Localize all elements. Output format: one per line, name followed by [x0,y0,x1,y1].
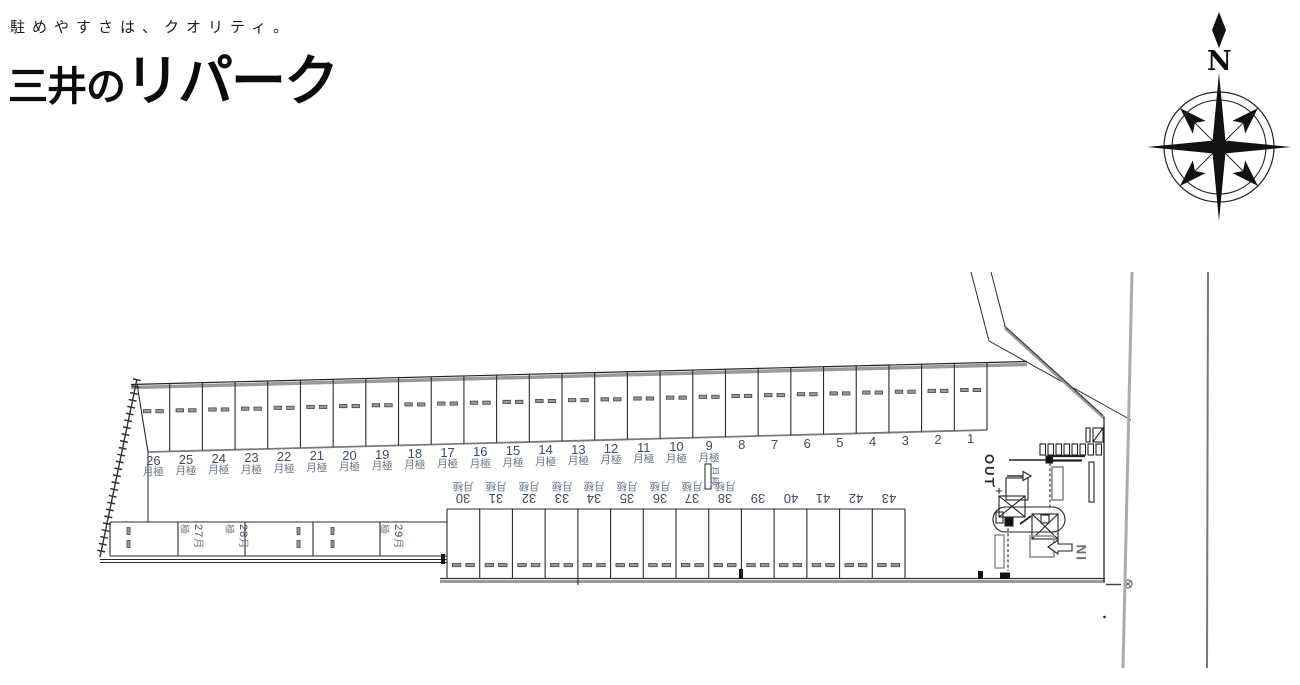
wheel-stop [127,528,130,535]
space-number: 32 [514,492,544,505]
compass-east-point [1219,140,1291,154]
wheel-stop [646,397,654,400]
wheel-stop [143,410,151,413]
space-monthly-label: 月極 [612,480,642,491]
space-number: 34 [579,492,609,505]
space-number: 29月極 [377,524,404,554]
wheel-stop [858,564,867,567]
island-marker [1005,518,1013,526]
wheel-stop [662,564,671,567]
wheel-stop [405,403,413,406]
road-lines [1123,272,1208,668]
space-number: 35 [612,492,642,505]
wheel-stop [352,405,360,408]
space-number: 2 [923,433,953,446]
space-number: 5 [825,436,855,449]
space-number: 28 [237,524,249,538]
wheel-stop [732,394,740,397]
space-monthly-label: 月極 [498,458,528,469]
wheel-stop [176,409,184,412]
space-monthly-label: 月極 [547,480,577,491]
wheel-stop [499,564,508,567]
wheel-stop [891,564,900,567]
wheel-stop [466,564,475,567]
space-number: 27月極 [177,524,204,554]
wheel-stop [127,541,130,548]
brand-tagline: 駐めやすさは、クオリティ。 [10,16,295,37]
space-number: 6 [792,437,822,450]
wheel-stop [973,388,981,391]
wheel-stop [863,391,871,394]
wheel-stop [695,564,704,567]
compass-north-label: N [1207,46,1232,77]
wheel-stop [503,400,511,403]
wheel-stop [319,405,327,408]
wheel-stop [568,399,576,402]
wheel-stop [450,402,458,405]
wheel-stop [614,398,622,401]
compass-rose [1147,12,1291,221]
wheel-stop [254,407,262,410]
wheel-stop [483,401,491,404]
space-monthly-label: 月極 [661,454,691,465]
wheel-stop [515,400,523,403]
space-number: 31 [481,492,511,505]
wheel-stop [629,564,638,567]
wheel-stop [744,394,752,397]
wheel-stop [712,395,720,398]
wheel-stop [438,402,446,405]
space-number: 10 [661,440,691,453]
wheel-stop [908,390,916,393]
wheel-stop [765,394,773,397]
equipment-cabinet [995,535,1004,568]
space-monthly-label: 月極 [433,459,463,470]
wheel-stop [760,564,769,567]
space-monthly-label: 月極 [645,480,675,491]
space-monthly-label: 月極 [400,460,430,471]
equipment-cabinet [1089,462,1094,502]
compass-west-point [1147,140,1219,154]
wheel-stop [940,389,948,392]
space-number: 13 [563,443,593,456]
space-monthly-label: 月極 [171,466,201,477]
wheel-stop [385,404,393,407]
space-number: 1 [956,432,986,445]
space-number: 21 [302,449,332,462]
wheel-stop [780,564,789,567]
gate-island [993,507,1065,532]
wheel-stop [221,408,229,411]
wheel-stop [470,401,478,404]
space-number: 17 [433,446,463,459]
wheel-stop [297,528,300,535]
space-monthly-label: 月極 [629,454,659,465]
logo-prefix: 三井の [8,65,125,109]
wheel-stop [875,391,883,394]
wheel-stop [878,564,887,567]
wheel-stop [679,396,687,399]
wheel-stop [331,528,334,535]
wheel-stop [842,392,850,395]
wheel-stop [297,541,300,548]
space-monthly-label: 月極 [302,463,332,474]
wheel-stop [331,541,334,548]
space-number: 4 [858,435,888,448]
wheel-stop [209,408,217,411]
space-number: 26 [138,454,168,467]
space-number: 23 [236,451,266,464]
space-number: 38 [710,492,740,505]
space-monthly-label: 月極 [367,461,397,472]
sign-post [1086,428,1090,442]
wheel-stop [634,397,642,400]
wheel-stop [830,392,838,395]
wheel-stop [564,564,573,567]
wheel-stop [747,564,756,567]
wheel-stop [372,404,380,407]
space-number: 28月極 [222,524,249,554]
space-number: 25 [171,453,201,466]
space-monthly-label: 月極 [236,465,266,476]
wheel-stop [417,403,425,406]
space-monthly-label: 月極 [269,464,299,475]
space-number: 37 [677,492,707,505]
wheel-stop [961,388,969,391]
wheel-stop [485,564,494,567]
space-number: 15 [498,444,528,457]
space-monthly-label: 月極 [677,480,707,491]
space-number: 42 [841,492,871,505]
wheel-stop [928,389,936,392]
wheel-stop [728,564,737,567]
space-number: 33 [547,492,577,505]
wheel-stop [307,405,315,408]
wheel-stop [156,410,164,413]
space-monthly-label: 月極 [138,467,168,478]
space-number: 30 [448,492,478,505]
space-number: 19 [367,448,397,461]
compass-diamond [1212,12,1226,48]
space-number: 3 [890,434,920,447]
space-monthly-label: 月極 [481,480,511,491]
gate-post-marker [1046,456,1053,463]
gate-out-label: OUT [982,454,997,487]
space-number: 16 [465,445,495,458]
compass-south-point [1212,147,1226,221]
wheel-stop [581,399,589,402]
space-number: 41 [808,492,838,505]
out-arrow-icon [1023,472,1031,481]
space-number: 29 [392,524,404,538]
space-monthly-label: 月極 [579,480,609,491]
space-monthly-label: 月極 [465,459,495,470]
fence-strip [1040,444,1102,455]
brand-logo: 三井のリパーク [8,36,337,116]
wheel-stop [616,564,625,567]
wheel-stop [699,395,707,398]
wheel-stop [548,399,556,402]
wheel-stop [551,564,560,567]
wheel-stop [649,564,658,567]
wheel-stop [797,393,805,396]
wheel-stop [777,394,785,397]
wheel-stop [452,564,461,567]
space-number: 14 [531,443,561,456]
logo-main: リパーク [125,50,337,112]
space-monthly-label: 月極 [563,456,593,467]
parking-site-plan: 駐めやすさは、クオリティ。 三井のリパーク N OUT IN 月極 26月極25… [0,0,1300,685]
space-number: 20 [335,449,365,462]
space-number: 8 [727,438,757,451]
space-number: 12 [596,442,626,455]
wheel-stop [531,564,540,567]
space-monthly-label: 月極 [335,462,365,473]
post-marker [1000,573,1010,580]
space-number: 39 [743,492,773,505]
space-number: 43 [874,492,904,505]
wheel-stop [340,405,348,408]
wheel-stop [274,406,282,409]
space-monthly-label: 月極 [448,480,478,491]
space-divider [137,384,148,452]
wheel-stop [826,564,835,567]
wheel-stop [895,390,903,393]
space-monthly-label: 月極 [694,453,724,464]
space-number: 27 [192,524,204,538]
space-number: 40 [776,492,806,505]
wheel-stop [793,564,802,567]
space-number: 18 [400,447,430,460]
wheel-stop [601,398,609,401]
wheel-stop [681,564,690,567]
space-monthly-label: 月極 [514,480,544,491]
post-marker [978,571,983,579]
wheel-stop [812,564,821,567]
wheel-stop [845,564,854,567]
wheel-stop [666,396,674,399]
space-number: 36 [645,492,675,505]
wheel-stop [810,393,818,396]
space-number: 22 [269,450,299,463]
space-number: 9 [694,439,724,452]
wheel-stop [287,406,295,409]
wheel-stop [241,407,249,410]
wheel-stop [597,564,606,567]
space-monthly-label: 月極 [531,457,561,468]
wheel-stop [518,564,527,567]
gate-in-label: IN [1074,543,1089,561]
wheel-stop [583,564,592,567]
wheel-stop [536,399,544,402]
wheel-stop [714,564,723,567]
space-monthly-label: 月極 [710,480,740,491]
equipment-cabinet [1052,467,1063,500]
in-arrow-icon [1048,540,1072,554]
wheel-stop [189,409,197,412]
space-monthly-label: 月極 [596,455,626,466]
space-number: 11 [629,441,659,454]
space-number: 24 [204,452,234,465]
space-monthly-label: 月極 [204,465,234,476]
space-number: 7 [760,438,790,451]
compass-north-point [1212,73,1226,147]
